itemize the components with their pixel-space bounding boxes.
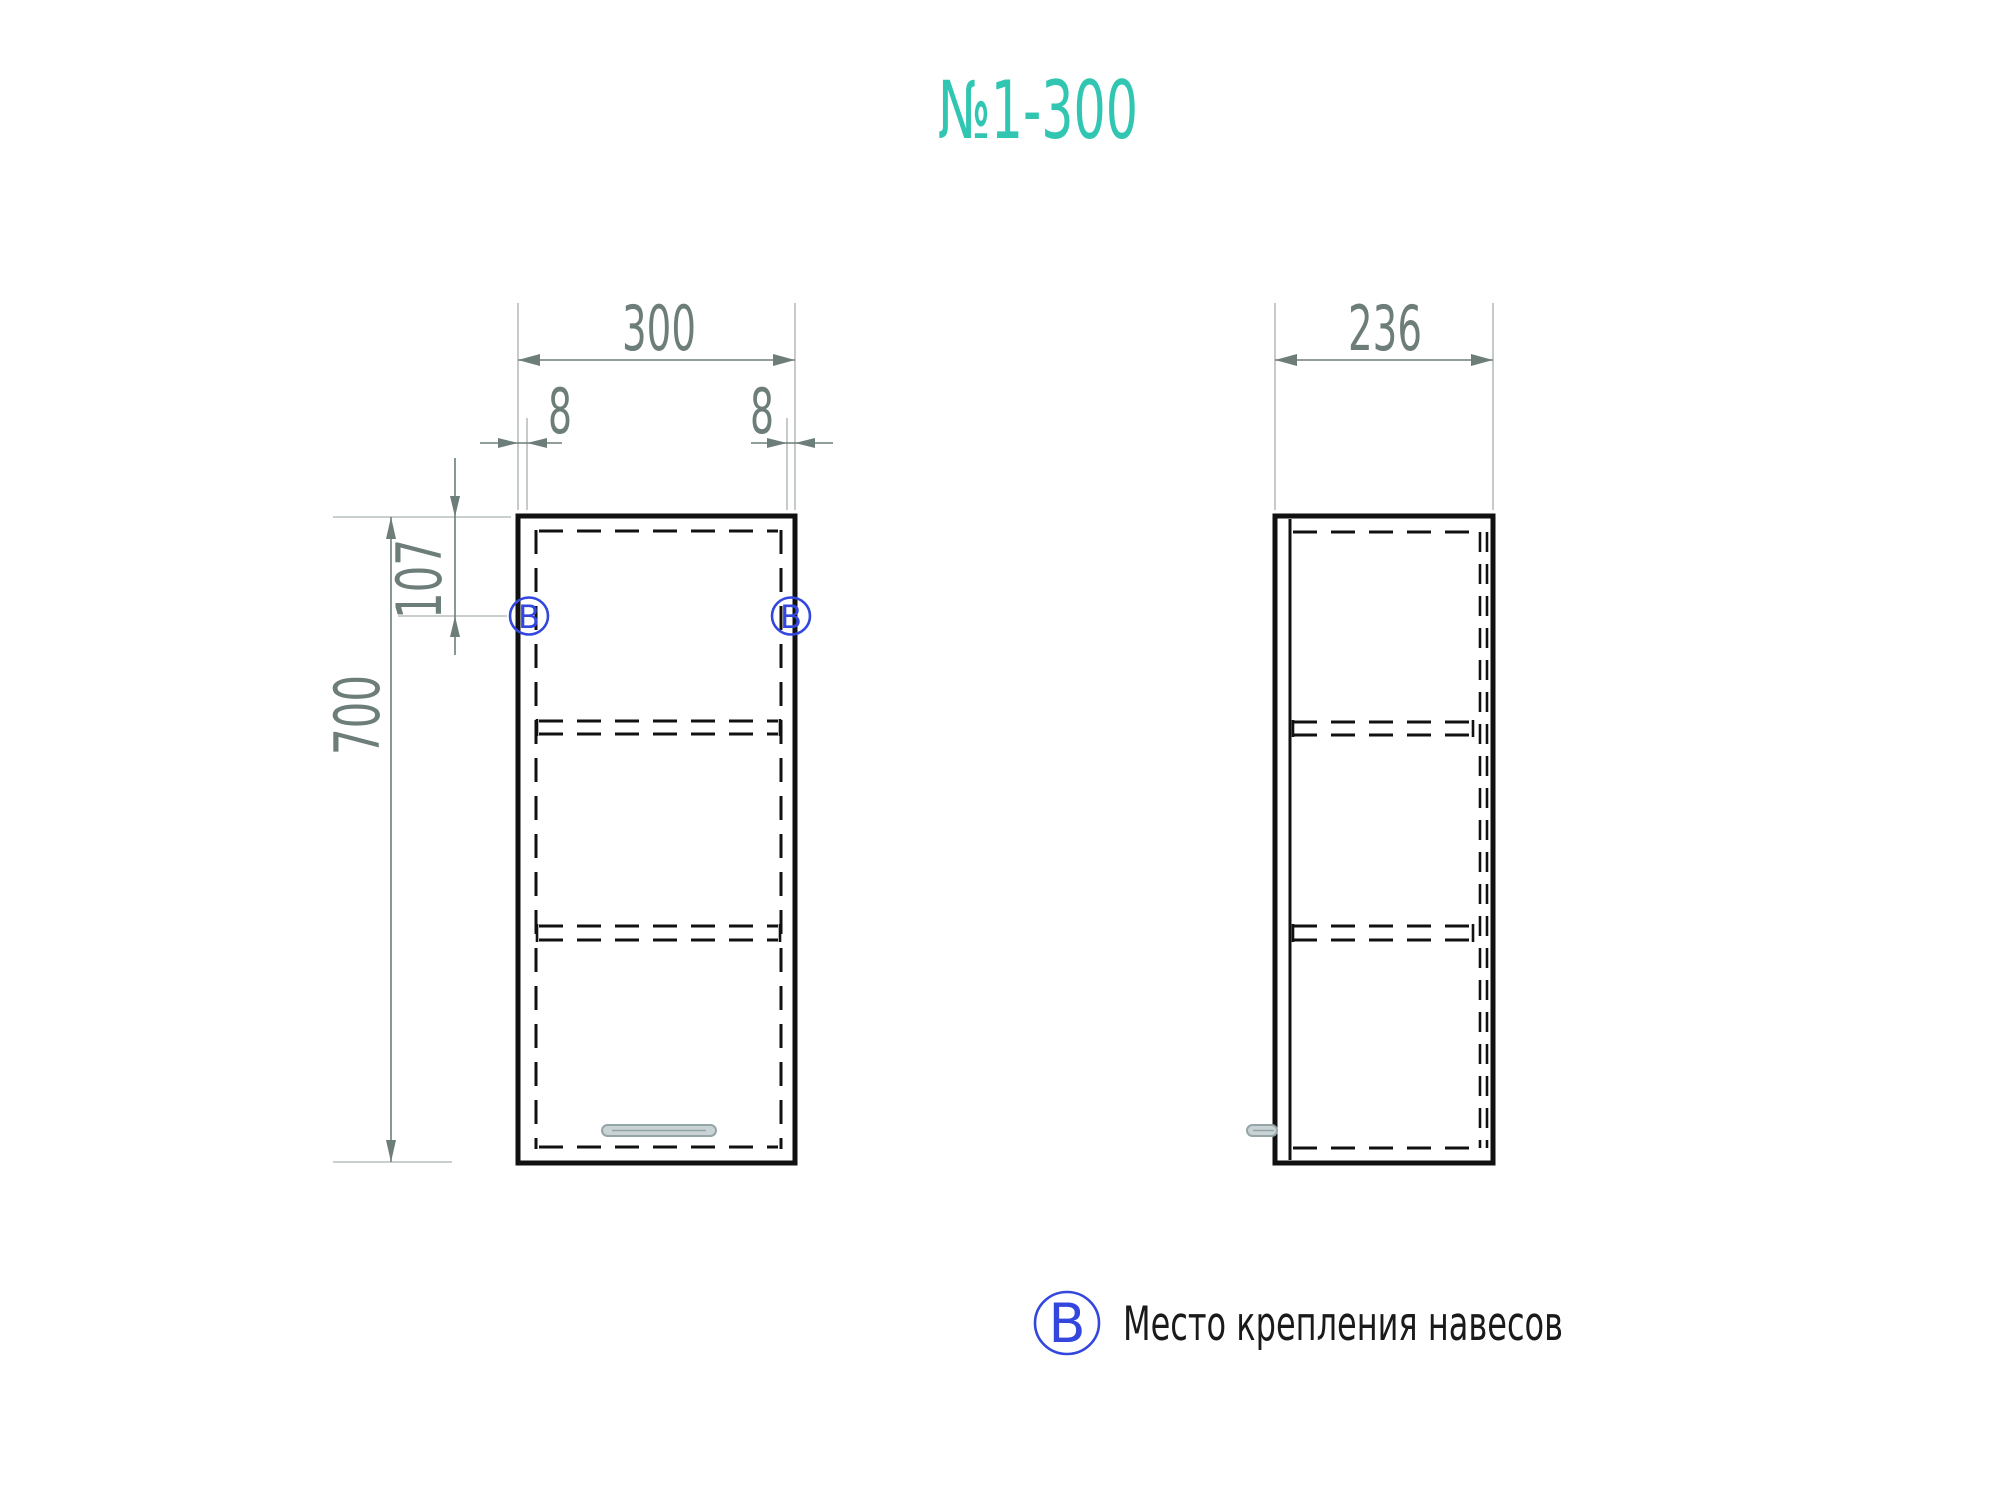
dim-hole-offset: 107 [383,458,460,655]
arrowhead [386,1140,396,1162]
dim-side-depth: 236 [1275,292,1493,366]
front-view: В В [510,516,810,1163]
arrowhead [1471,354,1493,366]
arrowhead [386,517,396,539]
front-door-handle [602,1125,716,1136]
dim-label: 700 [321,675,394,755]
page-title: №1-300 [938,64,1138,157]
dim-offset-left: 8 [480,375,572,448]
arrowhead [498,438,518,448]
arrowhead [527,438,547,448]
dim-front-width: 300 [518,292,795,366]
mount-marker-letter: В [518,598,540,636]
side-door-handle [1247,1125,1277,1136]
side-cabinet-outline [1275,516,1493,1163]
dim-label: 8 [750,375,774,448]
drawing-canvas: №1-300 В В [0,0,2000,1500]
arrowhead [773,354,795,366]
legend: В Место крепления навесов [1035,1292,1563,1355]
legend-label: Место крепления навесов [1123,1297,1563,1352]
dim-label: 107 [383,539,456,619]
dim-label: 300 [622,292,696,365]
dim-offset-right: 8 [750,375,833,448]
legend-marker-letter: В [1048,1292,1085,1355]
side-view [1247,516,1493,1163]
arrowhead [518,354,540,366]
arrowhead [795,438,815,448]
side-dimensions: 236 [1275,292,1493,510]
dim-label: 8 [548,375,572,448]
arrowhead [450,496,460,517]
dim-label: 236 [1348,292,1422,365]
mount-marker-letter: В [780,598,802,636]
front-cabinet-outline [518,516,795,1163]
arrowhead [1275,354,1297,366]
title-group: №1-300 [938,64,1138,157]
